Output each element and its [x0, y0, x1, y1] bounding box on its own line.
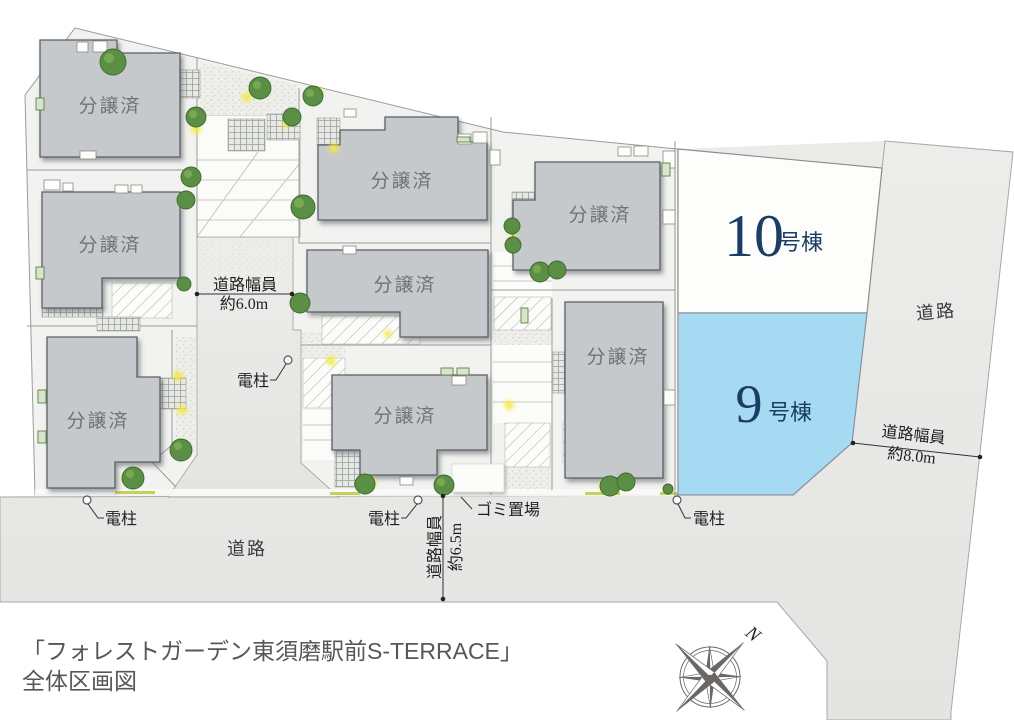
lot-10-suffix: 号棟: [779, 230, 823, 255]
utility-pole-2-label: 電柱: [237, 372, 269, 390]
garbage-label: ゴミ置場: [476, 500, 540, 519]
sold-label-3: 分譲済: [66, 410, 129, 432]
plan-title: 「フォレストガーデン東須磨駅前S-TERRACE」 全体区画図: [22, 638, 523, 694]
sold-label-2: 分譲済: [78, 234, 141, 256]
sold-label-8: 分譲済: [586, 346, 649, 368]
garbage-area-box: [452, 464, 504, 492]
sold-label-7: 分譲済: [568, 204, 631, 226]
dim-6-5-value: 約6.5m: [447, 522, 465, 571]
lot-9-number: 9: [736, 374, 763, 434]
utility-pole-3-label: 電柱: [368, 510, 400, 528]
sold-label-4: 分譲済: [370, 170, 433, 192]
site-plan-page: 分譲済 分譲済 分譲済 分譲済 分譲済 分譲済 分譲済 分譲済 10 号棟 9 …: [0, 0, 1014, 720]
sold-label-6: 分譲済: [373, 405, 436, 427]
lot-9-suffix: 号棟: [768, 400, 812, 425]
sold-label-5: 分譲済: [373, 274, 436, 296]
dim-6-0-label: 道路幅員: [213, 276, 277, 294]
plan-title-line2: 全体区画図: [22, 668, 137, 694]
road-label-right: 道路: [915, 300, 957, 323]
lot-10-number: 10: [724, 203, 784, 269]
utility-pole-4-label: 電柱: [693, 510, 725, 528]
dim-6-5-label: 道路幅員: [426, 515, 444, 579]
north-label: N: [740, 622, 765, 648]
site-plan-drawing: 分譲済 分譲済 分譲済 分譲済 分譲済 分譲済 分譲済 分譲済 10 号棟 9 …: [0, 0, 1014, 720]
road-label-bottom: 道路: [227, 539, 267, 559]
building-sold-8: [565, 302, 663, 478]
sold-label-1: 分譲済: [78, 95, 141, 117]
dim-6-0-value: 約6.0m: [220, 295, 269, 313]
compass-rose: N: [642, 609, 778, 720]
utility-pole-1-label: 電柱: [105, 510, 137, 528]
plan-title-line1: 「フォレストガーデン東須磨駅前S-TERRACE」: [22, 638, 523, 664]
